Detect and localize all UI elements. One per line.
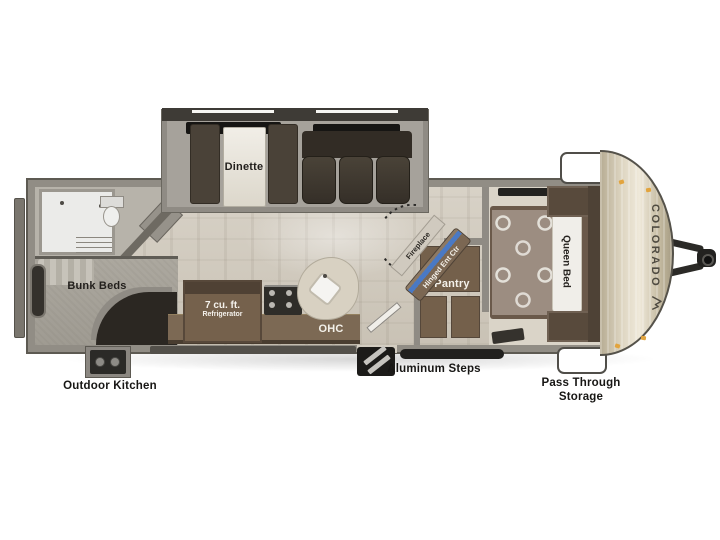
marker-light-icon (641, 336, 647, 341)
refrigerator-text-label: Refrigerator (186, 311, 259, 319)
tv-icon (498, 188, 552, 196)
pass-through-label-line1: Pass Through (541, 377, 620, 389)
shower-floor-lines (76, 233, 112, 253)
ohc-label: OHC (318, 323, 343, 335)
marker-light-icon (646, 188, 652, 193)
mountain-logo-icon (646, 295, 664, 311)
dinette-label: Dinette (225, 161, 264, 173)
refrigerator-label: 7 cu. ft. Refrigerator (186, 300, 259, 319)
tub-faucet-dot (60, 201, 64, 205)
queen-bed-label: Queen Bed (561, 222, 572, 302)
pantry-cabinet-lower (420, 296, 447, 338)
sofa-backrest (302, 131, 412, 158)
brand-badge: COLORADO (644, 204, 666, 314)
aluminum-steps-label: Aluminum Steps (387, 363, 481, 375)
burner-icon (286, 290, 292, 296)
pantry-label: Pantry (434, 278, 469, 290)
slide-roof-dash (192, 110, 274, 113)
toilet-icon (103, 206, 120, 227)
outdoor-kitchen-label: Outdoor Kitchen (63, 380, 157, 392)
queen-bed-comforter (492, 210, 552, 315)
burner-icon (269, 290, 275, 296)
burner-icon (286, 302, 292, 308)
coupler-knob (702, 254, 714, 266)
burner-icon (269, 302, 275, 308)
bedroom-wall (482, 187, 489, 312)
rear-wall-window (30, 264, 46, 318)
pantry-cabinet-lower (451, 296, 480, 338)
brand-name: COLORADO (649, 204, 661, 288)
sofa-cushion (339, 156, 373, 204)
outdoor-kitchen-knob (95, 357, 105, 367)
dinette-bench-left (190, 124, 220, 204)
sofa-cushion (376, 156, 410, 204)
faucet-dot (323, 274, 327, 278)
sofa-cushion (302, 156, 336, 204)
floorplan-canvas: Bunk Beds Dinette 7 cu. ft. Refrigerator… (0, 0, 720, 540)
pass-through-label-line2: Storage (559, 391, 603, 403)
body-skirt-trim (150, 346, 356, 354)
awning-bar (400, 349, 504, 359)
slide-roof-dash (316, 110, 398, 113)
rear-bumper (14, 198, 25, 338)
dinette-bench-right (268, 124, 298, 204)
outdoor-kitchen-knob (110, 357, 120, 367)
bunk-beds-label: Bunk Beds (67, 280, 126, 292)
refrigerator-size-label: 7 cu. ft. (186, 300, 259, 311)
